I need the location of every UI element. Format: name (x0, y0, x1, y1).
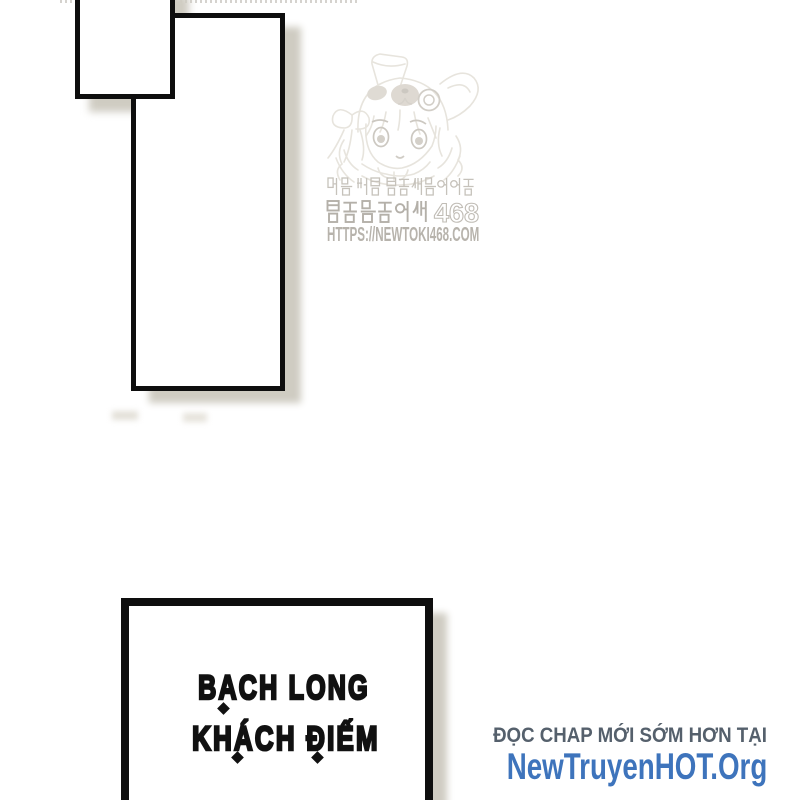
svg-text:HTTPS://NEWTOKI468.COM: HTTPS://NEWTOKI468.COM (327, 224, 479, 246)
